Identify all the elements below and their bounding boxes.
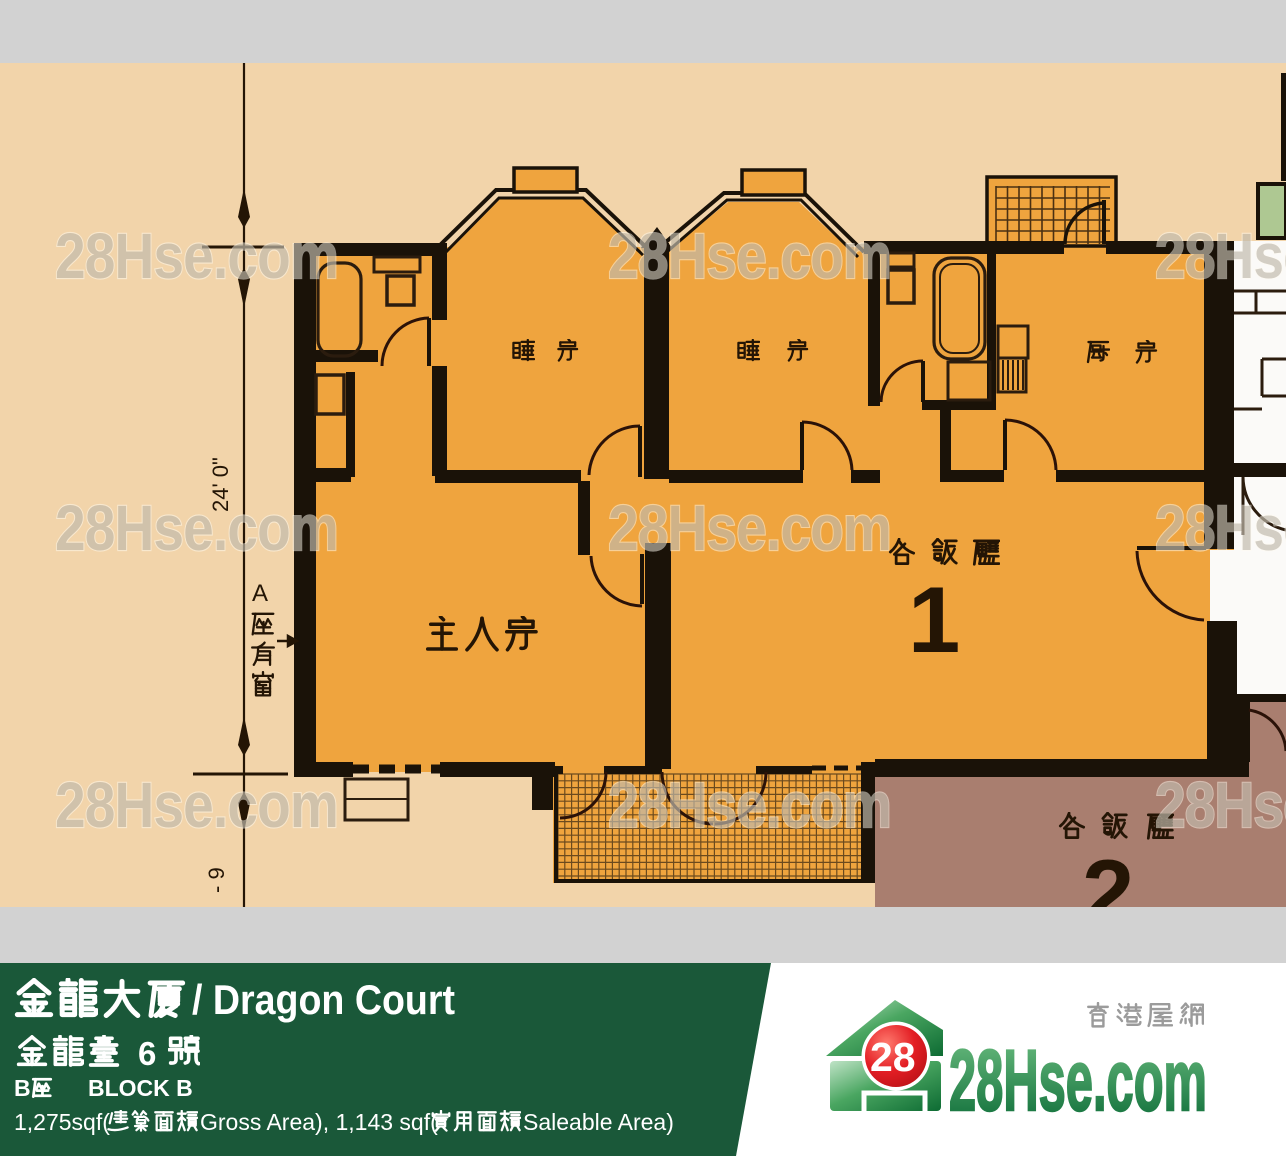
svg-text:Saleable Area): Saleable Area)	[523, 1109, 674, 1135]
svg-text:28Hse.com: 28Hse.com	[608, 492, 891, 564]
svg-text:Gross Area), 1,143 sqf(: Gross Area), 1,143 sqf(	[200, 1109, 438, 1135]
svg-text:- 9: - 9	[204, 867, 229, 893]
svg-text:28Hse.com: 28Hse.com	[608, 220, 891, 292]
svg-text:28Hse.com: 28Hse.com	[55, 769, 338, 841]
svg-text:28Hse.com: 28Hse.com	[1155, 492, 1286, 564]
svg-text:6: 6	[138, 1035, 156, 1072]
svg-text:28Hse.com: 28Hse.com	[1155, 220, 1286, 292]
svg-text:A: A	[252, 580, 268, 607]
svg-text:28Hse.com: 28Hse.com	[1155, 769, 1286, 841]
svg-text:28: 28	[870, 1034, 916, 1080]
svg-text:1,275sqf(: 1,275sqf(	[14, 1109, 110, 1135]
svg-text:28Hse.com: 28Hse.com	[55, 492, 338, 564]
svg-text:28Hse.com: 28Hse.com	[949, 1033, 1207, 1129]
svg-text:B: B	[14, 1075, 31, 1101]
svg-text:1: 1	[908, 567, 960, 672]
svg-text:28Hse.com: 28Hse.com	[55, 220, 338, 292]
svg-text:BLOCK B: BLOCK B	[88, 1075, 193, 1101]
svg-text:/ Dragon Court: / Dragon Court	[192, 976, 455, 1023]
svg-text:28Hse.com: 28Hse.com	[608, 769, 891, 841]
